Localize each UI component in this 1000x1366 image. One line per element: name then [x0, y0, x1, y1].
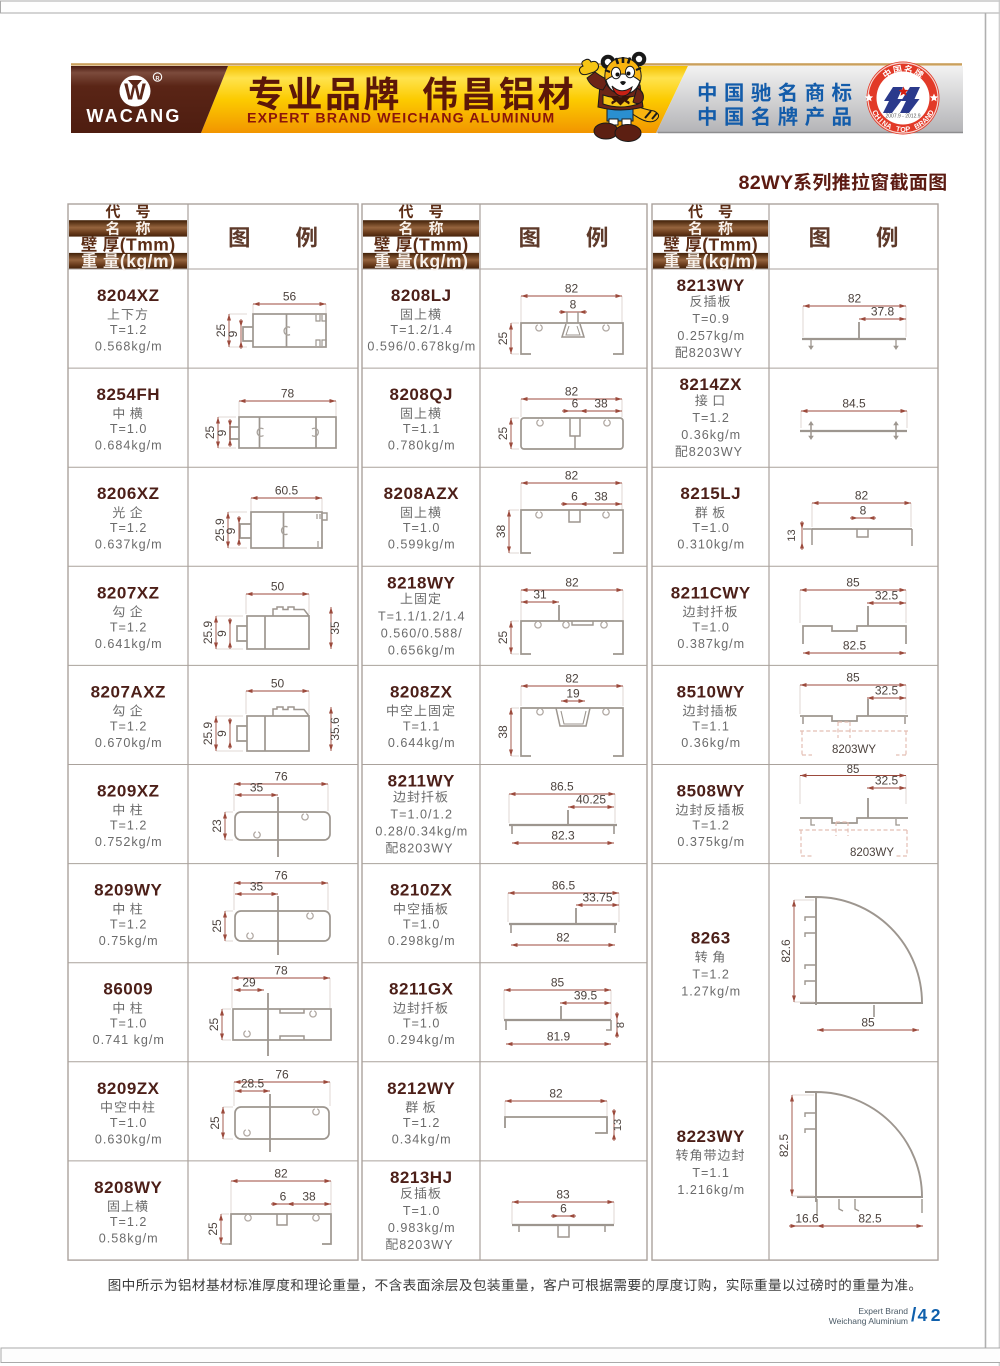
svg-text:9: 9 [215, 429, 229, 436]
svg-text:T=1.0: T=1.0 [692, 521, 730, 535]
svg-text:8211GX: 8211GX [389, 980, 454, 999]
svg-text:25.9: 25.9 [201, 721, 215, 745]
svg-text:0.298kg/m: 0.298kg/m [388, 934, 456, 948]
svg-text:25: 25 [496, 631, 510, 645]
svg-text:38: 38 [494, 525, 508, 539]
svg-text:8214ZX: 8214ZX [679, 375, 742, 394]
svg-text:T=1.1: T=1.1 [692, 1166, 730, 1180]
svg-text:8211CWY: 8211CWY [671, 583, 751, 602]
svg-text:31: 31 [533, 588, 547, 602]
svg-text:13: 13 [612, 1119, 624, 1131]
svg-text:T=1.0: T=1.0 [403, 918, 441, 932]
svg-text:86.5: 86.5 [550, 780, 574, 794]
svg-text:0.36kg/m: 0.36kg/m [681, 428, 741, 442]
svg-text:0.28/0.34kg/m: 0.28/0.34kg/m [375, 825, 468, 839]
svg-text:8203WY: 8203WY [850, 847, 894, 859]
svg-text:50: 50 [271, 580, 285, 594]
svg-text:0.741 kg/m: 0.741 kg/m [93, 1033, 165, 1047]
svg-text:81.9: 81.9 [547, 1030, 571, 1044]
svg-text:82.5: 82.5 [843, 639, 867, 653]
svg-text:0.58kg/m: 0.58kg/m [99, 1231, 159, 1245]
svg-text:25.9: 25.9 [201, 620, 215, 644]
svg-text:T=1.2/1.4: T=1.2/1.4 [390, 323, 453, 337]
svg-text:32.5: 32.5 [875, 589, 899, 603]
svg-text:6: 6 [572, 397, 579, 411]
svg-text:82: 82 [556, 931, 570, 945]
svg-text:23: 23 [210, 819, 224, 833]
svg-text:9: 9 [215, 630, 229, 637]
svg-text:T=1.0: T=1.0 [110, 1116, 148, 1130]
svg-text:82: 82 [565, 672, 579, 686]
svg-text:0.752kg/m: 0.752kg/m [95, 835, 163, 849]
svg-text:T=1.2: T=1.2 [110, 719, 148, 733]
svg-text:39.5: 39.5 [574, 989, 598, 1003]
svg-text:0.375kg/m: 0.375kg/m [677, 835, 745, 849]
svg-text:35.6: 35.6 [328, 717, 342, 741]
svg-text:T=1.2: T=1.2 [110, 620, 148, 634]
svg-text:T=1.0: T=1.0 [110, 1017, 148, 1031]
svg-text:8215LJ: 8215LJ [680, 484, 741, 503]
svg-text:T=1.2: T=1.2 [110, 323, 148, 337]
svg-text:T=1.0: T=1.0 [110, 422, 148, 436]
svg-text:56: 56 [283, 290, 297, 304]
svg-text:25: 25 [496, 427, 510, 441]
svg-text:8203WY: 8203WY [689, 445, 743, 459]
svg-text:T=1.2: T=1.2 [110, 521, 148, 535]
svg-text:T=1.1: T=1.1 [692, 719, 730, 733]
svg-text:35: 35 [250, 781, 264, 795]
svg-text:1.27kg/m: 1.27kg/m [681, 985, 741, 999]
svg-text:T=1.1: T=1.1 [403, 422, 441, 436]
svg-text:T=1.2: T=1.2 [692, 411, 730, 425]
svg-text:0.36kg/m: 0.36kg/m [681, 736, 741, 750]
svg-text:82: 82 [565, 469, 579, 483]
svg-text:29: 29 [242, 976, 256, 990]
svg-text:6: 6 [280, 1190, 287, 1204]
svg-text:T=1.0: T=1.0 [403, 521, 441, 535]
svg-text:0.34kg/m: 0.34kg/m [392, 1132, 452, 1146]
svg-text:8: 8 [570, 298, 577, 312]
svg-text:(kg/m): (kg/m) [120, 251, 176, 271]
svg-text:WACANG: WACANG [86, 106, 181, 126]
svg-text:8213WY: 8213WY [677, 276, 745, 295]
svg-text:85: 85 [861, 1016, 875, 1030]
svg-text:78: 78 [274, 964, 288, 978]
svg-text:T=1.0: T=1.0 [403, 1017, 441, 1031]
svg-text:T=1.0/1.2: T=1.0/1.2 [390, 808, 453, 822]
svg-text:82.5: 82.5 [858, 1212, 882, 1226]
svg-text:25: 25 [496, 332, 510, 346]
svg-text:T=1.2: T=1.2 [110, 1215, 148, 1229]
svg-text:1.216kg/m: 1.216kg/m [677, 1183, 745, 1197]
svg-text:8213HJ: 8213HJ [390, 1168, 453, 1187]
svg-text:0.670kg/m: 0.670kg/m [95, 736, 163, 750]
svg-text:9: 9 [226, 330, 240, 337]
svg-text:T=1.1/1.2/1.4: T=1.1/1.2/1.4 [378, 609, 466, 623]
svg-text:8208QJ: 8208QJ [390, 385, 454, 404]
svg-text:82: 82 [549, 1087, 563, 1101]
svg-text:8212WY: 8212WY [387, 1079, 455, 1098]
svg-text:8206XZ: 8206XZ [97, 484, 160, 503]
svg-text:0.596/0.678kg/m: 0.596/0.678kg/m [367, 340, 476, 354]
svg-text:9: 9 [224, 527, 238, 534]
svg-text:25: 25 [206, 1222, 220, 1236]
svg-text:0.656kg/m: 0.656kg/m [388, 643, 456, 657]
svg-text:82: 82 [855, 489, 869, 503]
svg-text:0.644kg/m: 0.644kg/m [388, 736, 456, 750]
svg-text:19: 19 [566, 687, 580, 701]
svg-text:8203WY: 8203WY [399, 1238, 453, 1252]
svg-text:6: 6 [571, 490, 578, 504]
svg-text:82: 82 [274, 1167, 288, 1181]
svg-text:0.641kg/m: 0.641kg/m [95, 637, 163, 651]
svg-text:86.5: 86.5 [552, 879, 576, 893]
svg-text:82.5: 82.5 [777, 1133, 791, 1157]
svg-text:25: 25 [208, 1116, 222, 1130]
svg-text:T=1.1: T=1.1 [403, 719, 441, 733]
svg-text:(kg/m): (kg/m) [413, 251, 469, 271]
svg-text:82.6: 82.6 [779, 939, 793, 963]
svg-text:T=0.9: T=0.9 [692, 312, 730, 326]
svg-text:2007.9 - 2012.9: 2007.9 - 2012.9 [885, 114, 920, 120]
svg-text:28.5: 28.5 [241, 1077, 265, 1091]
svg-text:0.294kg/m: 0.294kg/m [388, 1033, 456, 1047]
svg-text:8510WY: 8510WY [677, 682, 745, 701]
svg-text:37.8: 37.8 [871, 305, 895, 319]
svg-text:35: 35 [328, 621, 342, 635]
svg-text:82: 82 [565, 576, 579, 590]
svg-text:38: 38 [302, 1190, 316, 1204]
svg-text:83: 83 [556, 1188, 570, 1202]
svg-text:0.568kg/m: 0.568kg/m [95, 340, 163, 354]
svg-text:(kg/m): (kg/m) [702, 251, 758, 271]
svg-text:8203WY: 8203WY [399, 842, 453, 856]
svg-text:85: 85 [846, 576, 860, 590]
svg-text:50: 50 [271, 677, 285, 691]
svg-text:8209XZ: 8209XZ [97, 782, 160, 801]
svg-text:38: 38 [496, 725, 510, 739]
svg-text:8211WY: 8211WY [388, 772, 455, 791]
svg-text:T=1.2: T=1.2 [403, 1116, 441, 1130]
svg-text:8208WY: 8208WY [94, 1178, 162, 1197]
svg-text:8204XZ: 8204XZ [97, 286, 160, 305]
svg-text:0.780kg/m: 0.780kg/m [388, 439, 456, 453]
svg-text:76: 76 [275, 1068, 289, 1082]
svg-text:8208ZX: 8208ZX [390, 682, 453, 701]
svg-text:76: 76 [274, 869, 288, 883]
svg-text:0.560/0.588/: 0.560/0.588/ [381, 626, 463, 640]
svg-text:82.3: 82.3 [551, 829, 575, 843]
svg-text:38: 38 [594, 490, 608, 504]
svg-text:R: R [156, 76, 160, 82]
svg-text:8203WY: 8203WY [689, 346, 743, 360]
svg-text:82WY: 82WY [738, 172, 793, 194]
svg-text:85: 85 [846, 671, 860, 685]
svg-text:6: 6 [560, 1202, 567, 1216]
svg-text:T=1.2: T=1.2 [692, 968, 730, 982]
svg-text:8254FH: 8254FH [97, 385, 160, 404]
svg-text:0.75kg/m: 0.75kg/m [99, 934, 159, 948]
svg-text:T=1.2: T=1.2 [692, 819, 730, 833]
svg-text:0.630kg/m: 0.630kg/m [95, 1132, 163, 1146]
svg-text:0.257kg/m: 0.257kg/m [677, 329, 745, 343]
svg-text:8207XZ: 8207XZ [97, 583, 160, 602]
svg-text:8203WY: 8203WY [832, 744, 876, 756]
svg-text:8209ZX: 8209ZX [97, 1079, 160, 1098]
svg-text:82: 82 [848, 292, 862, 306]
svg-text:0.387kg/m: 0.387kg/m [677, 637, 745, 651]
svg-text:8508WY: 8508WY [677, 782, 745, 801]
svg-text:Weichang Aluminium: Weichang Aluminium [829, 1316, 908, 1326]
svg-text:33.75: 33.75 [582, 891, 612, 905]
svg-text:T=1.0: T=1.0 [692, 620, 730, 634]
svg-text:8207AXZ: 8207AXZ [91, 682, 166, 701]
svg-text:0.637kg/m: 0.637kg/m [95, 538, 163, 552]
svg-text:42: 42 [918, 1305, 944, 1325]
svg-text:78: 78 [281, 387, 295, 401]
svg-text:25: 25 [210, 919, 224, 933]
svg-text:13: 13 [786, 529, 798, 541]
svg-text:T=1.2: T=1.2 [110, 819, 148, 833]
svg-text:T=1.2: T=1.2 [110, 918, 148, 932]
svg-text:84.5: 84.5 [842, 397, 866, 411]
svg-text:8223WY: 8223WY [677, 1127, 745, 1146]
svg-text:32.5: 32.5 [875, 774, 899, 788]
svg-text:0.684kg/m: 0.684kg/m [95, 439, 163, 453]
svg-text:8210ZX: 8210ZX [390, 881, 453, 900]
svg-text:85: 85 [551, 976, 565, 990]
svg-text:25: 25 [207, 1018, 221, 1032]
svg-text:40.25: 40.25 [576, 793, 606, 807]
svg-text:8208LJ: 8208LJ [391, 286, 452, 305]
svg-text:32.5: 32.5 [875, 684, 899, 698]
svg-text:8208AZX: 8208AZX [384, 484, 459, 503]
svg-text:85: 85 [847, 764, 860, 776]
svg-text:0.310kg/m: 0.310kg/m [677, 538, 745, 552]
svg-text:8: 8 [860, 504, 867, 518]
svg-text:9: 9 [215, 730, 229, 737]
svg-text:T=1.0: T=1.0 [403, 1204, 441, 1218]
svg-text:82: 82 [565, 282, 579, 296]
svg-text:86009: 86009 [103, 980, 153, 999]
svg-text:Expert Brand: Expert Brand [858, 1306, 908, 1316]
svg-text:0.599kg/m: 0.599kg/m [388, 538, 456, 552]
svg-text:8209WY: 8209WY [94, 881, 162, 900]
svg-text:0.983kg/m: 0.983kg/m [388, 1221, 456, 1235]
svg-text:35: 35 [250, 880, 264, 894]
svg-text:8: 8 [615, 1022, 627, 1028]
svg-text:/: / [911, 1305, 917, 1326]
svg-text:76: 76 [274, 770, 288, 784]
svg-text:38: 38 [594, 397, 608, 411]
svg-text:8263: 8263 [691, 929, 731, 948]
svg-text:16.6: 16.6 [795, 1212, 819, 1226]
svg-text:8218WY: 8218WY [387, 573, 455, 592]
svg-text:EXPERT BRAND WEICHANG ALUMINUM: EXPERT BRAND WEICHANG ALUMINUM [247, 111, 555, 127]
svg-text:60.5: 60.5 [275, 484, 299, 498]
